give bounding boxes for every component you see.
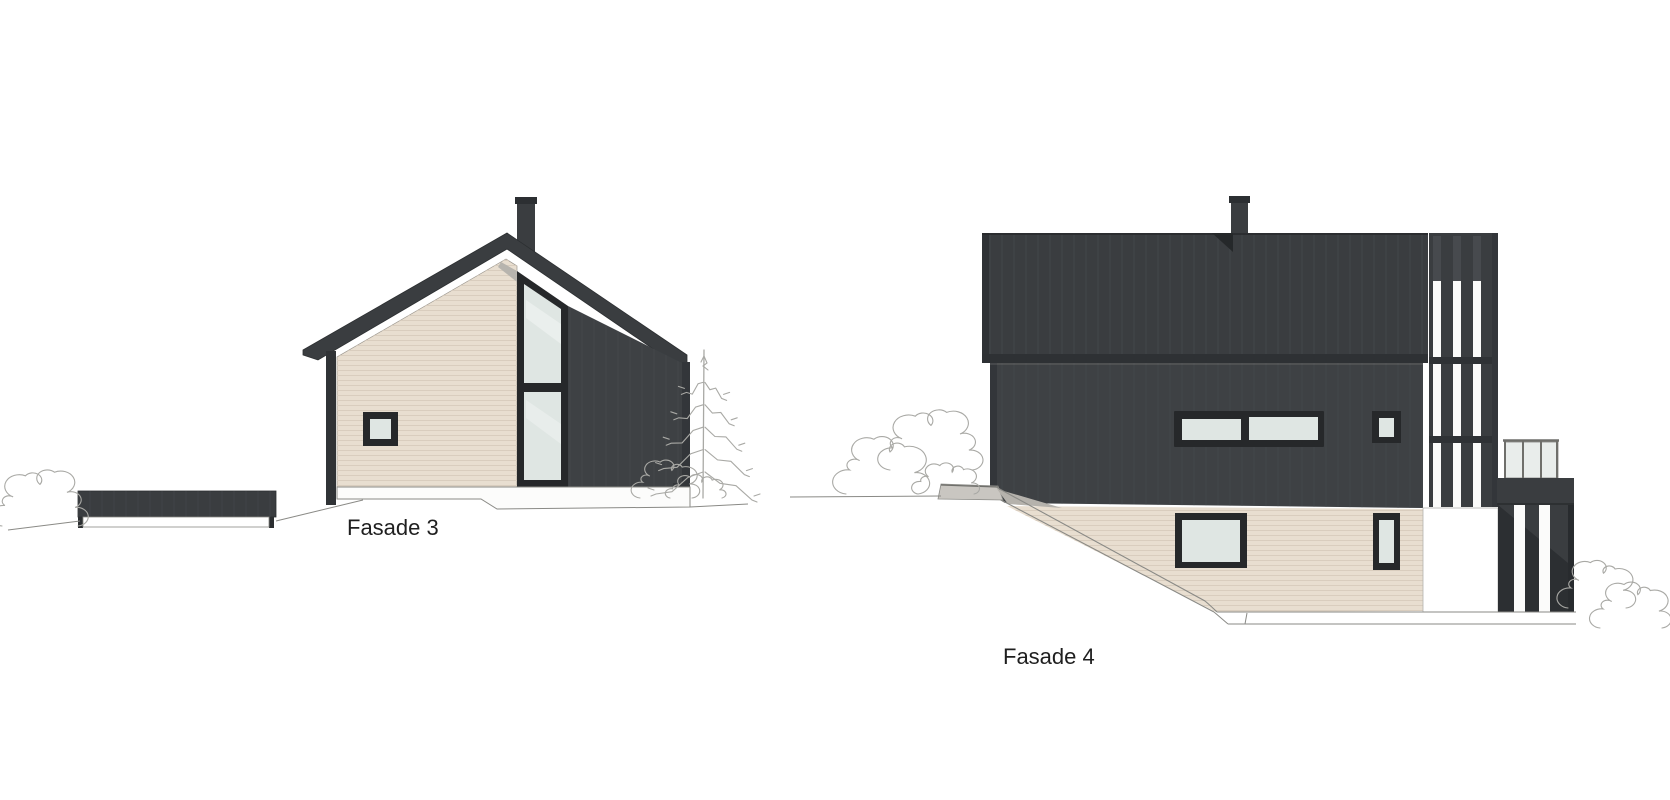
bush-sketch-0 (0, 470, 88, 526)
f3-low-wall (78, 491, 276, 528)
f4-strip-window-right-pane (1249, 417, 1318, 440)
tree-branch-right-0-2 (705, 405, 737, 426)
f4-balcony-columns (1498, 505, 1574, 612)
fasade3-drawing: Fasade 3 (8, 197, 748, 540)
f4-left-ground-line (790, 496, 941, 497)
tree-trunk-0 (703, 350, 704, 498)
tree-branch-right-0-3 (705, 427, 745, 451)
drawing-sheet: Fasade 3 (0, 0, 1670, 800)
f4-label: Fasade 4 (1003, 644, 1095, 669)
f4-roof-block (982, 233, 1428, 363)
f3-square-window (363, 412, 398, 446)
f4-small-window (1372, 411, 1401, 443)
f3-corner-post-left (326, 351, 336, 505)
f3-foundation (337, 487, 690, 509)
f4-slat-screen (1429, 233, 1498, 507)
f4-balcony-railing (1503, 440, 1559, 478)
bush-sketch-6 (1590, 582, 1670, 628)
f4-ground-band (1214, 612, 1576, 624)
bush-sketch-2 (833, 437, 930, 494)
f4-porch-void (1423, 508, 1498, 612)
fasade4-drawing: Fasade 4 (790, 196, 1576, 669)
tree-branch-right-0-4 (705, 450, 752, 477)
tree-branch-right-0-1 (705, 382, 730, 400)
f4-chimney (1229, 196, 1250, 236)
f4-balcony-fascia (1497, 478, 1574, 505)
f3-label: Fasade 3 (347, 515, 439, 540)
bush-sketch-3 (878, 410, 983, 470)
elevation-svg: Fasade 3 (0, 0, 1670, 800)
tree-branch-right-0-5 (705, 472, 760, 502)
f3-tall-window (517, 271, 568, 488)
f4-strip-window-left-pane (1182, 419, 1241, 440)
f4-basement-narrow-window (1373, 513, 1400, 570)
f3-corner-post-right (682, 362, 690, 487)
f4-strip-window (1174, 411, 1324, 447)
f4-basement-window (1175, 513, 1247, 568)
